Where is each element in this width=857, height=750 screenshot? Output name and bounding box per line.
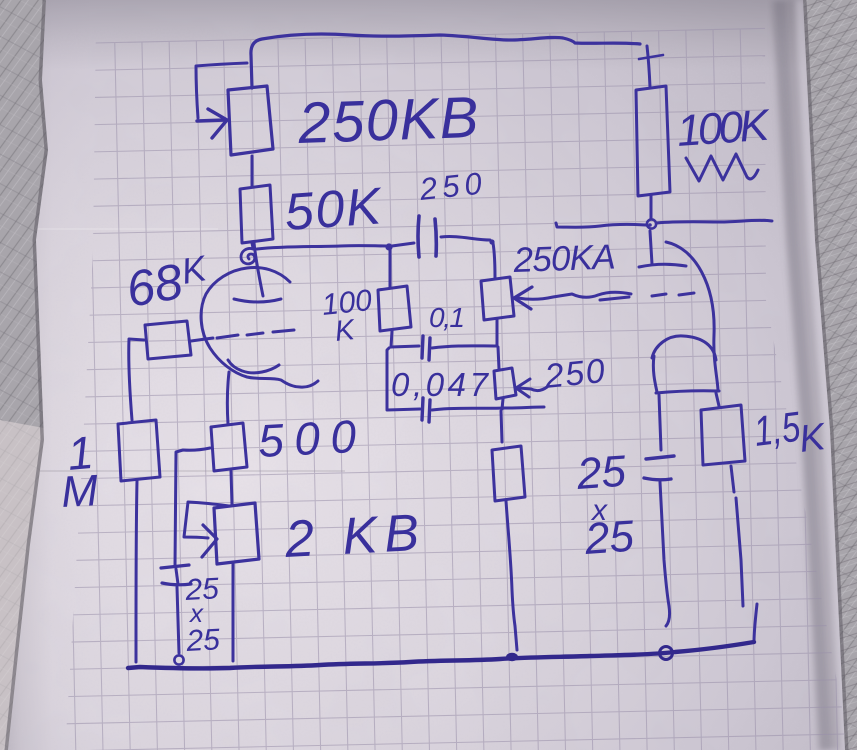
svg-text:0,047: 0,047 [391, 366, 490, 403]
svg-text:68: 68 [122, 253, 187, 318]
svg-text:25: 25 [574, 447, 628, 499]
svg-text:500: 500 [257, 410, 358, 467]
svg-text:0,1: 0,1 [429, 302, 465, 333]
svg-text:100K: 100K [675, 101, 772, 156]
svg-text:250: 250 [417, 166, 483, 207]
svg-text:1,5: 1,5 [751, 403, 803, 455]
svg-text:25: 25 [185, 623, 221, 658]
svg-text:2 KB: 2 KB [283, 504, 421, 569]
svg-text:250: 250 [542, 352, 607, 396]
svg-text:250KA: 250KA [512, 237, 616, 280]
svg-text:250KB: 250KB [296, 85, 479, 156]
svg-text:M: M [60, 466, 100, 517]
svg-text:25: 25 [582, 512, 636, 564]
svg-text:50K: 50K [283, 177, 385, 242]
